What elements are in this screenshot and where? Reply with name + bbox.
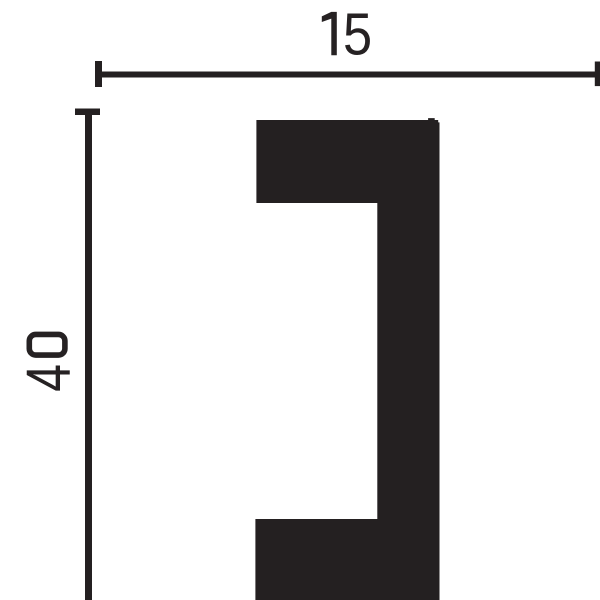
svg-text:5: 5	[343, 0, 372, 67]
svg-text:4: 4	[13, 364, 83, 392]
